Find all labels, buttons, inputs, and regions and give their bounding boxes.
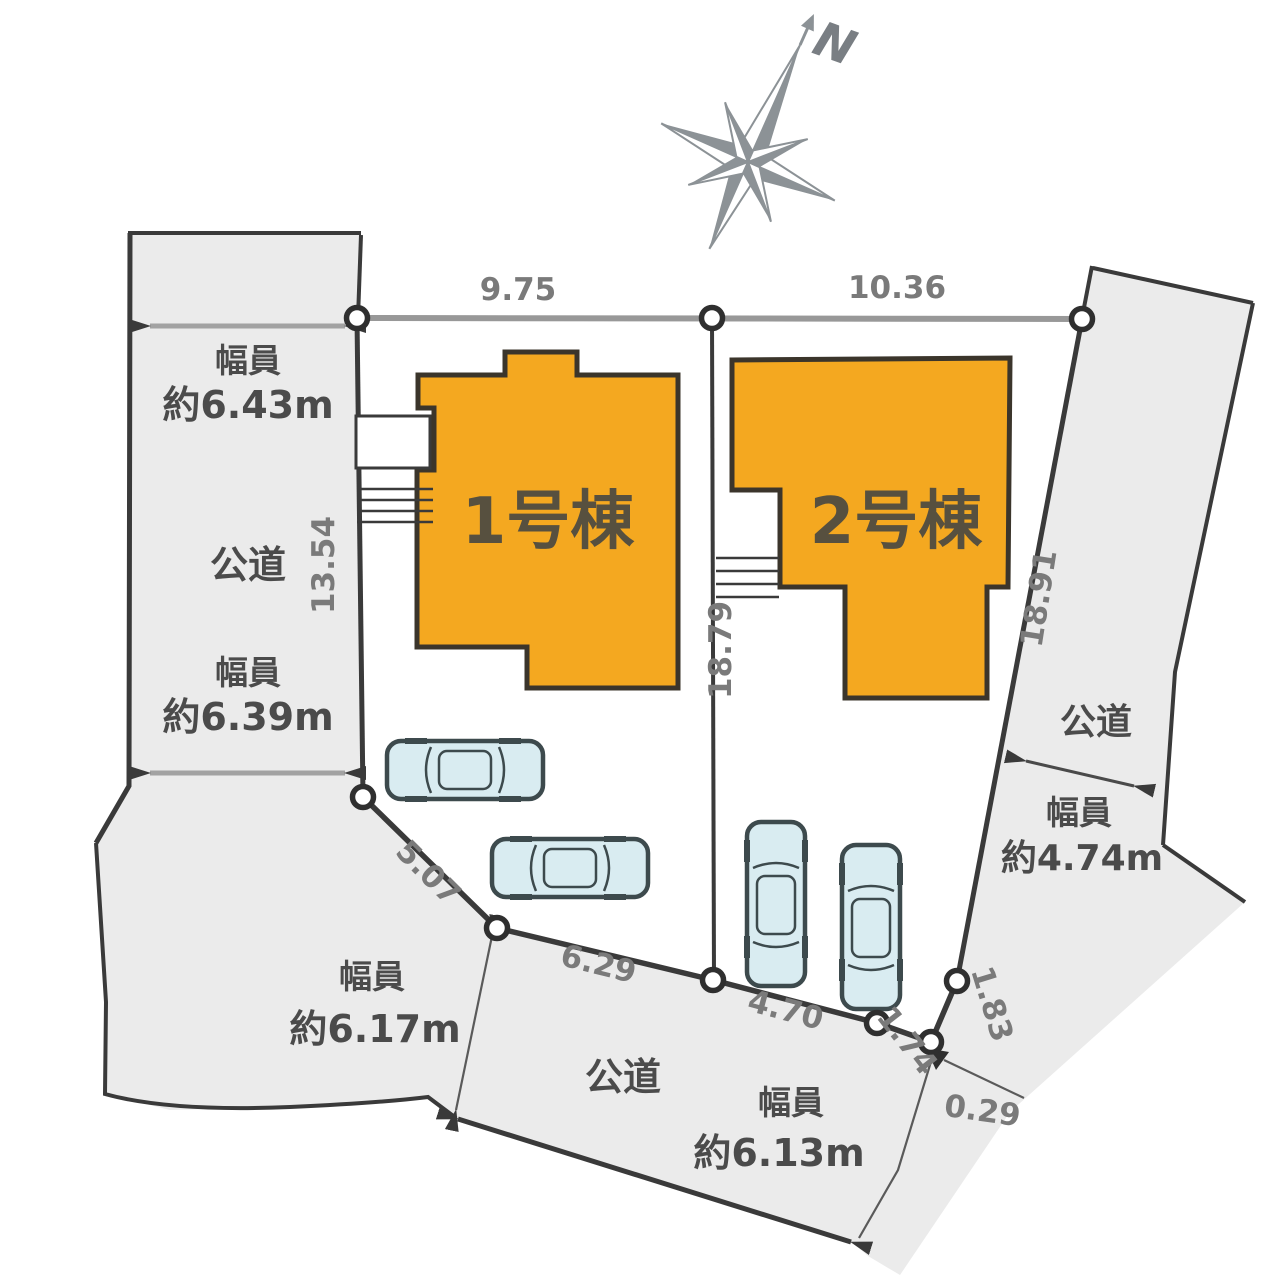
building-1-label: 1号棟 [462,485,636,559]
building-1-porch [356,416,430,468]
dim-lot1-frontage: 9.75 [480,272,557,308]
dim-lot2-frontage: 10.36 [848,270,946,306]
left-road-name: 公道 [210,543,286,587]
boundary-marker [347,308,368,329]
right-road-name: 公道 [1060,702,1132,743]
dim-left-depth: 13.54 [306,516,342,614]
boundary-marker [487,918,508,939]
boundary-marker [353,787,374,808]
dim-center-depth: 18.79 [703,601,739,699]
southwest-width-value: 約6.17m [289,1007,460,1051]
building-1: 1号棟 [417,352,678,688]
site-plan: N 1号棟 2号棟 [0,0,1280,1275]
car-3 [747,822,805,986]
car-1 [387,741,543,799]
right-road-width-label: 幅員 [1046,793,1112,832]
left-road-width-top-label: 幅員 [215,341,281,380]
car-2 [492,839,648,897]
bottom-road-name: 公道 [585,1055,661,1099]
boundary-marker [1072,309,1093,330]
southwest-width-label: 幅員 [339,957,405,996]
bottom-road-width-label: 幅員 [758,1083,824,1122]
site-plan-svg: N 1号棟 2号棟 [0,0,1280,1275]
left-road-width-bottom-label: 幅員 [215,653,281,692]
boundary-marker [703,970,724,991]
building-2-label: 2号棟 [810,485,984,559]
left-road-width-bottom-value: 約6.39m [162,695,333,739]
right-road-width-value: 約4.74m [1001,838,1163,879]
car-4 [842,845,900,1009]
boundary-marker [702,308,723,329]
bottom-road-width-value: 約6.13m [693,1131,864,1175]
left-road-width-top-value: 約6.43m [162,383,333,427]
